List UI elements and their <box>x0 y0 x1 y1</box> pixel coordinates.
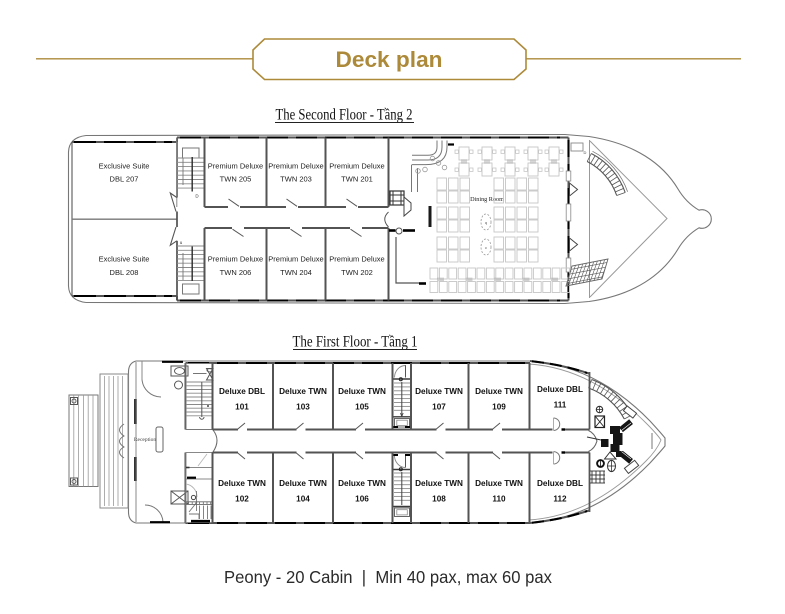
svg-text:TWN 206: TWN 206 <box>220 268 252 277</box>
svg-text:TWN 204: TWN 204 <box>280 268 312 277</box>
svg-text:The Second Floor - Tầng 2: The Second Floor - Tầng 2 <box>276 107 413 124</box>
svg-text:Premium Deluxe: Premium Deluxe <box>329 162 384 171</box>
svg-text:TWN 202: TWN 202 <box>341 268 373 277</box>
svg-text:Deluxe TWN: Deluxe TWN <box>338 387 386 396</box>
svg-text:105: 105 <box>355 403 369 412</box>
svg-text:103: 103 <box>296 403 310 412</box>
svg-text:Exclusive Suite: Exclusive Suite <box>99 162 150 171</box>
svg-text:108: 108 <box>432 495 446 504</box>
svg-text:Deluxe TWN: Deluxe TWN <box>415 479 463 488</box>
svg-text:Premium Deluxe: Premium Deluxe <box>208 162 263 171</box>
svg-text:TWN 201: TWN 201 <box>341 175 373 184</box>
svg-text:Premium Deluxe: Premium Deluxe <box>208 255 263 264</box>
svg-text:TWN 203: TWN 203 <box>280 175 312 184</box>
svg-text:104: 104 <box>296 495 310 504</box>
svg-text:DBL 207: DBL 207 <box>110 175 139 184</box>
svg-text:DBL 208: DBL 208 <box>110 268 139 277</box>
svg-text:107: 107 <box>432 403 446 412</box>
svg-text:106: 106 <box>355 495 369 504</box>
svg-text:Dining Room: Dining Room <box>470 196 504 203</box>
svg-text:Deluxe DBL: Deluxe DBL <box>537 479 583 488</box>
svg-text:111: 111 <box>554 401 567 410</box>
svg-text:112: 112 <box>553 495 567 504</box>
svg-text:110: 110 <box>492 495 506 504</box>
svg-text:Peony - 20 Cabin | Min 40 pa: Peony - 20 Cabin | Min 40 pax, max 60 pa… <box>224 567 552 587</box>
svg-text:Deluxe TWN: Deluxe TWN <box>475 387 523 396</box>
svg-text:Reception: Reception <box>134 437 157 443</box>
svg-text:Deluxe TWN: Deluxe TWN <box>279 387 327 396</box>
svg-text:Deluxe TWN: Deluxe TWN <box>475 479 523 488</box>
svg-text:Deluxe DBL: Deluxe DBL <box>537 385 583 394</box>
svg-text:D: D <box>584 150 587 155</box>
svg-text:109: 109 <box>492 403 506 412</box>
svg-text:Deck plan: Deck plan <box>336 47 443 72</box>
svg-text:Deluxe TWN: Deluxe TWN <box>218 479 266 488</box>
svg-text:Exclusive Suite: Exclusive Suite <box>99 255 150 264</box>
svg-text:Premium Deluxe: Premium Deluxe <box>268 162 323 171</box>
svg-text:Deluxe TWN: Deluxe TWN <box>338 479 386 488</box>
svg-text:Deluxe TWN: Deluxe TWN <box>415 387 463 396</box>
svg-text:c: c <box>485 245 487 250</box>
svg-text:The First Floor - Tầng 1: The First Floor - Tầng 1 <box>293 334 418 351</box>
svg-text:102: 102 <box>235 495 249 504</box>
svg-text:q: q <box>485 220 487 225</box>
svg-text:Premium Deluxe: Premium Deluxe <box>268 255 323 264</box>
svg-text:Premium Deluxe: Premium Deluxe <box>329 255 384 264</box>
svg-text:Deluxe TWN: Deluxe TWN <box>279 479 327 488</box>
svg-text:TWN 205: TWN 205 <box>220 175 252 184</box>
svg-text:101: 101 <box>235 403 249 412</box>
svg-text:Deluxe DBL: Deluxe DBL <box>219 387 265 396</box>
